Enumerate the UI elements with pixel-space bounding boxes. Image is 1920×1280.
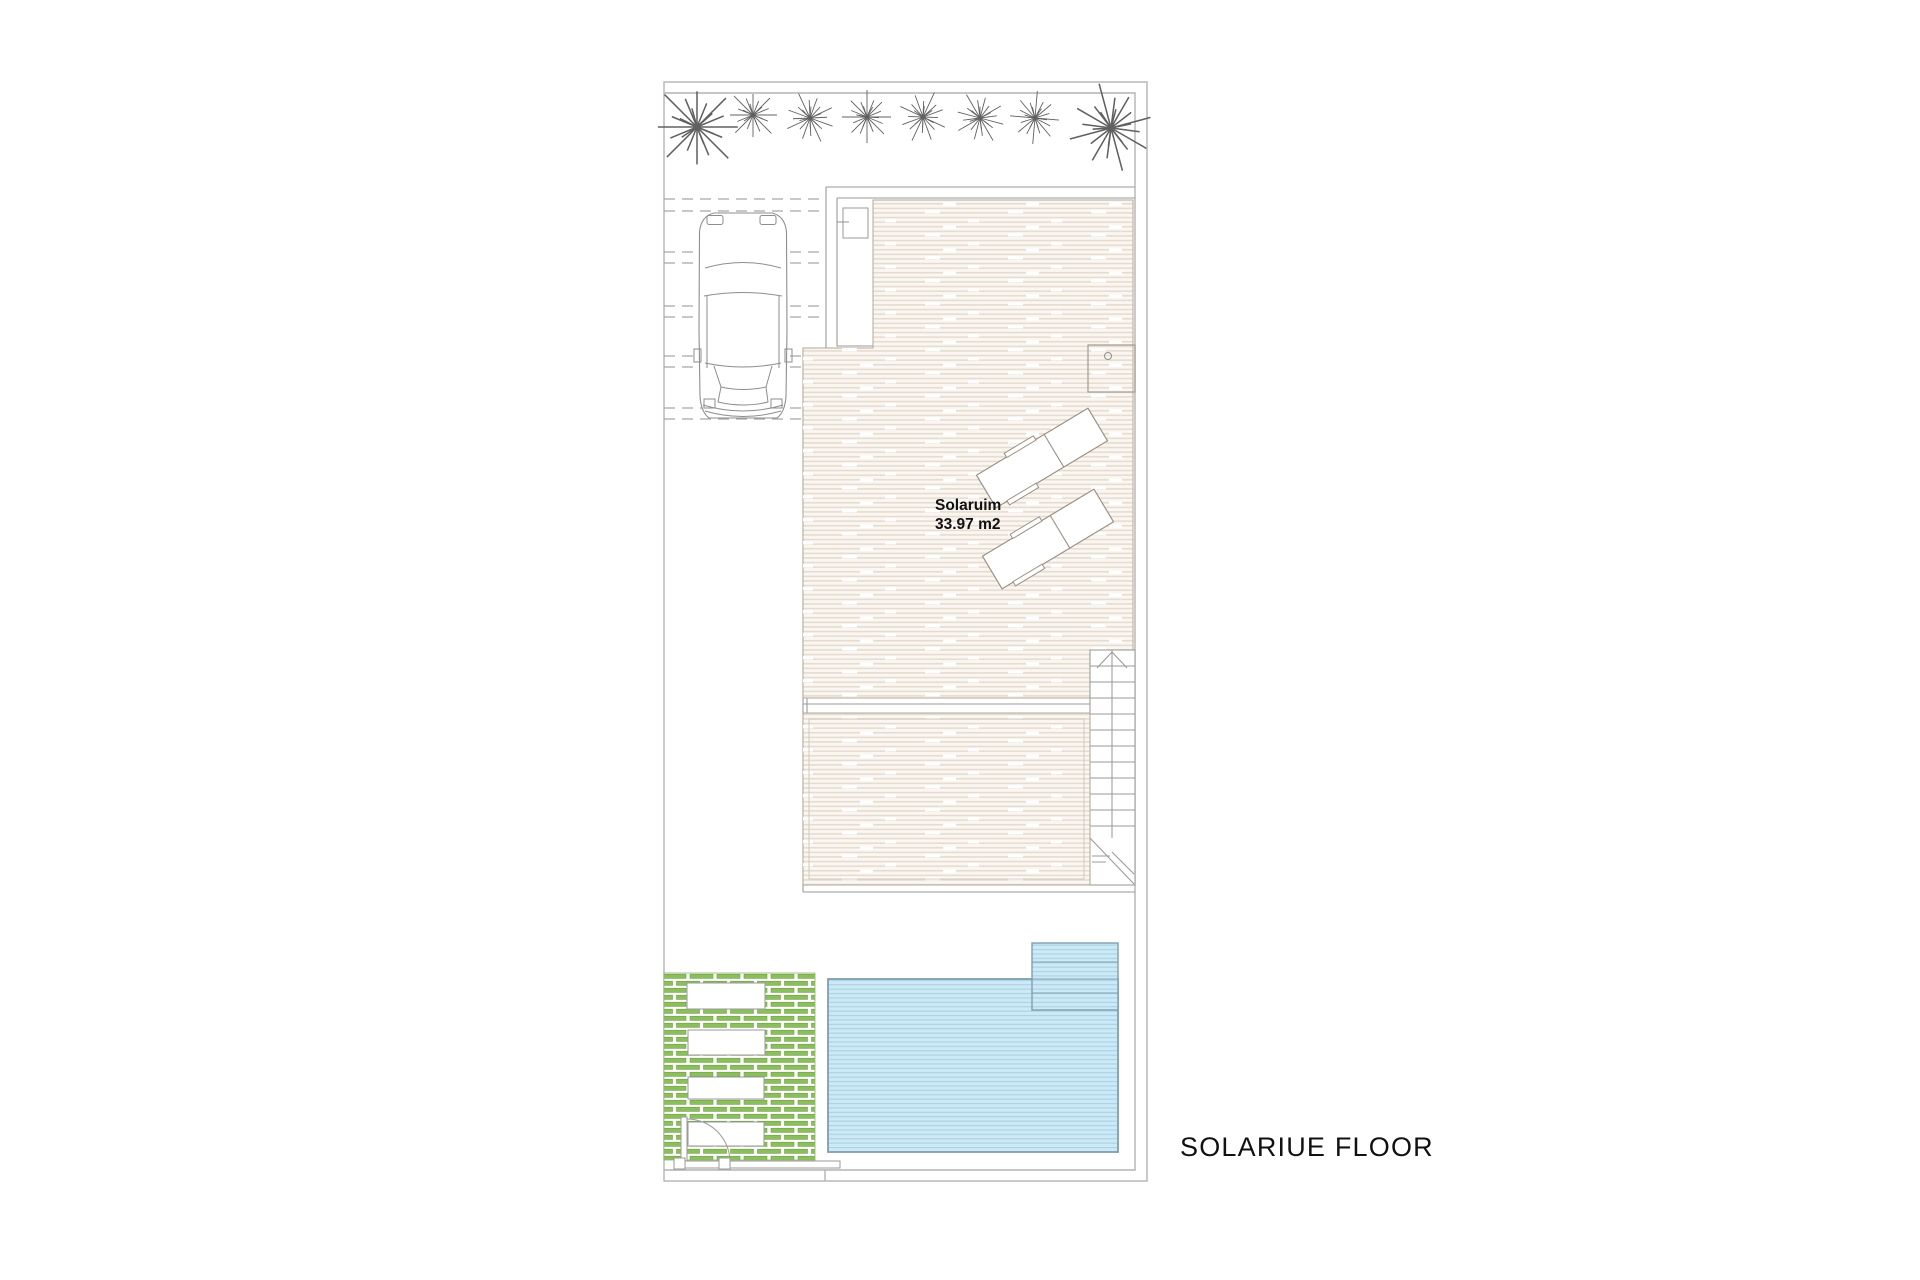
palm-tree-icon [1003, 87, 1066, 151]
swimming-pool [828, 943, 1118, 1152]
staircase [1090, 650, 1135, 885]
floor-plan-canvas: Solaruim 33.97 m2 [0, 0, 1920, 1280]
room-name: Solaruim [935, 497, 1001, 514]
planter [688, 1077, 764, 1099]
palm-tree-icon [952, 92, 1009, 146]
room-area: 33.97 m2 [935, 516, 1001, 533]
floor-title: SOLARIUE FLOOR [1180, 1132, 1434, 1162]
solarium-deck-lower [803, 713, 1090, 885]
palm-tree-icon [781, 90, 840, 146]
planter [687, 983, 765, 1009]
planter [688, 1030, 765, 1055]
pergola-area [664, 973, 840, 1169]
palm-tree-icon [730, 94, 777, 137]
pool-steps [1032, 943, 1118, 1010]
access-hatch [843, 208, 868, 238]
palm-tree-icon [835, 86, 899, 150]
planter [688, 1122, 764, 1146]
palm-tree-icon [894, 88, 950, 147]
car [694, 213, 792, 418]
palm-tree-icon [658, 91, 738, 164]
door-leaf [681, 1117, 687, 1163]
